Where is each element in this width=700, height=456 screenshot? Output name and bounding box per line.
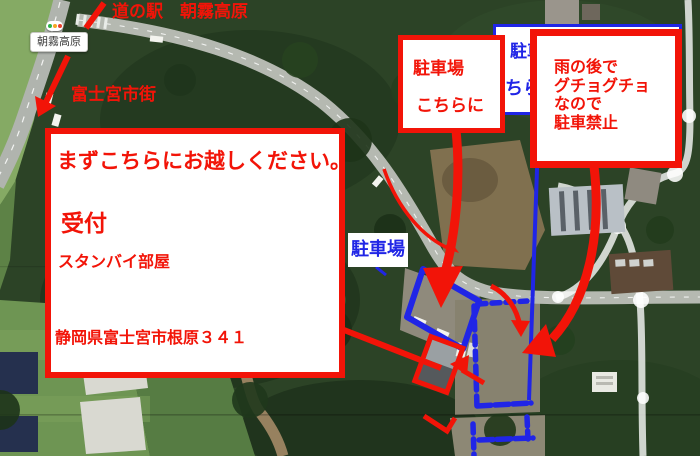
mud-warning-arrow (552, 166, 596, 339)
parking-label-pointer (376, 267, 386, 275)
mud-warning-text: 雨の後で グチョグチョ なので 駐車禁止 (554, 59, 650, 133)
mud-warning-box: 雨の後で グチョグチョ なので 駐車禁止 (530, 29, 682, 168)
parking-area-outline-b (474, 301, 531, 408)
parking-red-box: 駐車場 こちらに (398, 35, 505, 133)
fujinomiya-label: 富士宮市街 (71, 86, 156, 105)
traffic-red-dot (58, 24, 62, 28)
mud-box-line4: 駐車禁止 (554, 115, 650, 134)
reception-box-line1: まずこちらにお越しください。 (57, 150, 351, 173)
reception-box-line4: 静岡県富士宮市根原３４１ (55, 330, 247, 348)
parking-map-label-text: 駐車場 (351, 240, 405, 260)
map-place-label: 朝霧高原 (30, 32, 88, 52)
mud-warning-arrow-head (522, 324, 556, 357)
mud-box-line2: グチョグチョ (554, 78, 650, 97)
red-chevron-mark (424, 416, 455, 431)
arrow-to-fujinomiya (46, 56, 68, 102)
reception-box-line3: スタンバイ部屋 (58, 254, 170, 272)
parking-arrow-main (444, 130, 458, 276)
mud-box-line1: 雨の後で (554, 59, 650, 78)
lot-entry-arrow (491, 286, 520, 326)
parking-area-outline-c (473, 417, 533, 456)
arrow-to-michinoeki (86, 3, 104, 28)
traffic-yellow-dot (53, 24, 57, 28)
parking-red-box-line2: こちらに (416, 97, 484, 116)
annotated-satellite-map: 駐車場 こちらに (0, 0, 700, 456)
parking-red-box-line1: 駐車場 (413, 60, 464, 79)
lot-entry-arrow-head (511, 320, 530, 337)
traffic-light-icon (46, 21, 63, 31)
reception-box-line2: 受付 (61, 211, 107, 236)
traffic-green-dot (48, 24, 52, 28)
parking-map-label: 駐車場 (348, 233, 408, 267)
michinoeki-label: 道の駅 朝霧高原 (112, 3, 248, 22)
reception-info-box: まずこちらにお越しください。 受付 スタンバイ部屋 静岡県富士宮市根原３４１ (45, 128, 345, 378)
mud-box-line3: なので (554, 96, 650, 115)
